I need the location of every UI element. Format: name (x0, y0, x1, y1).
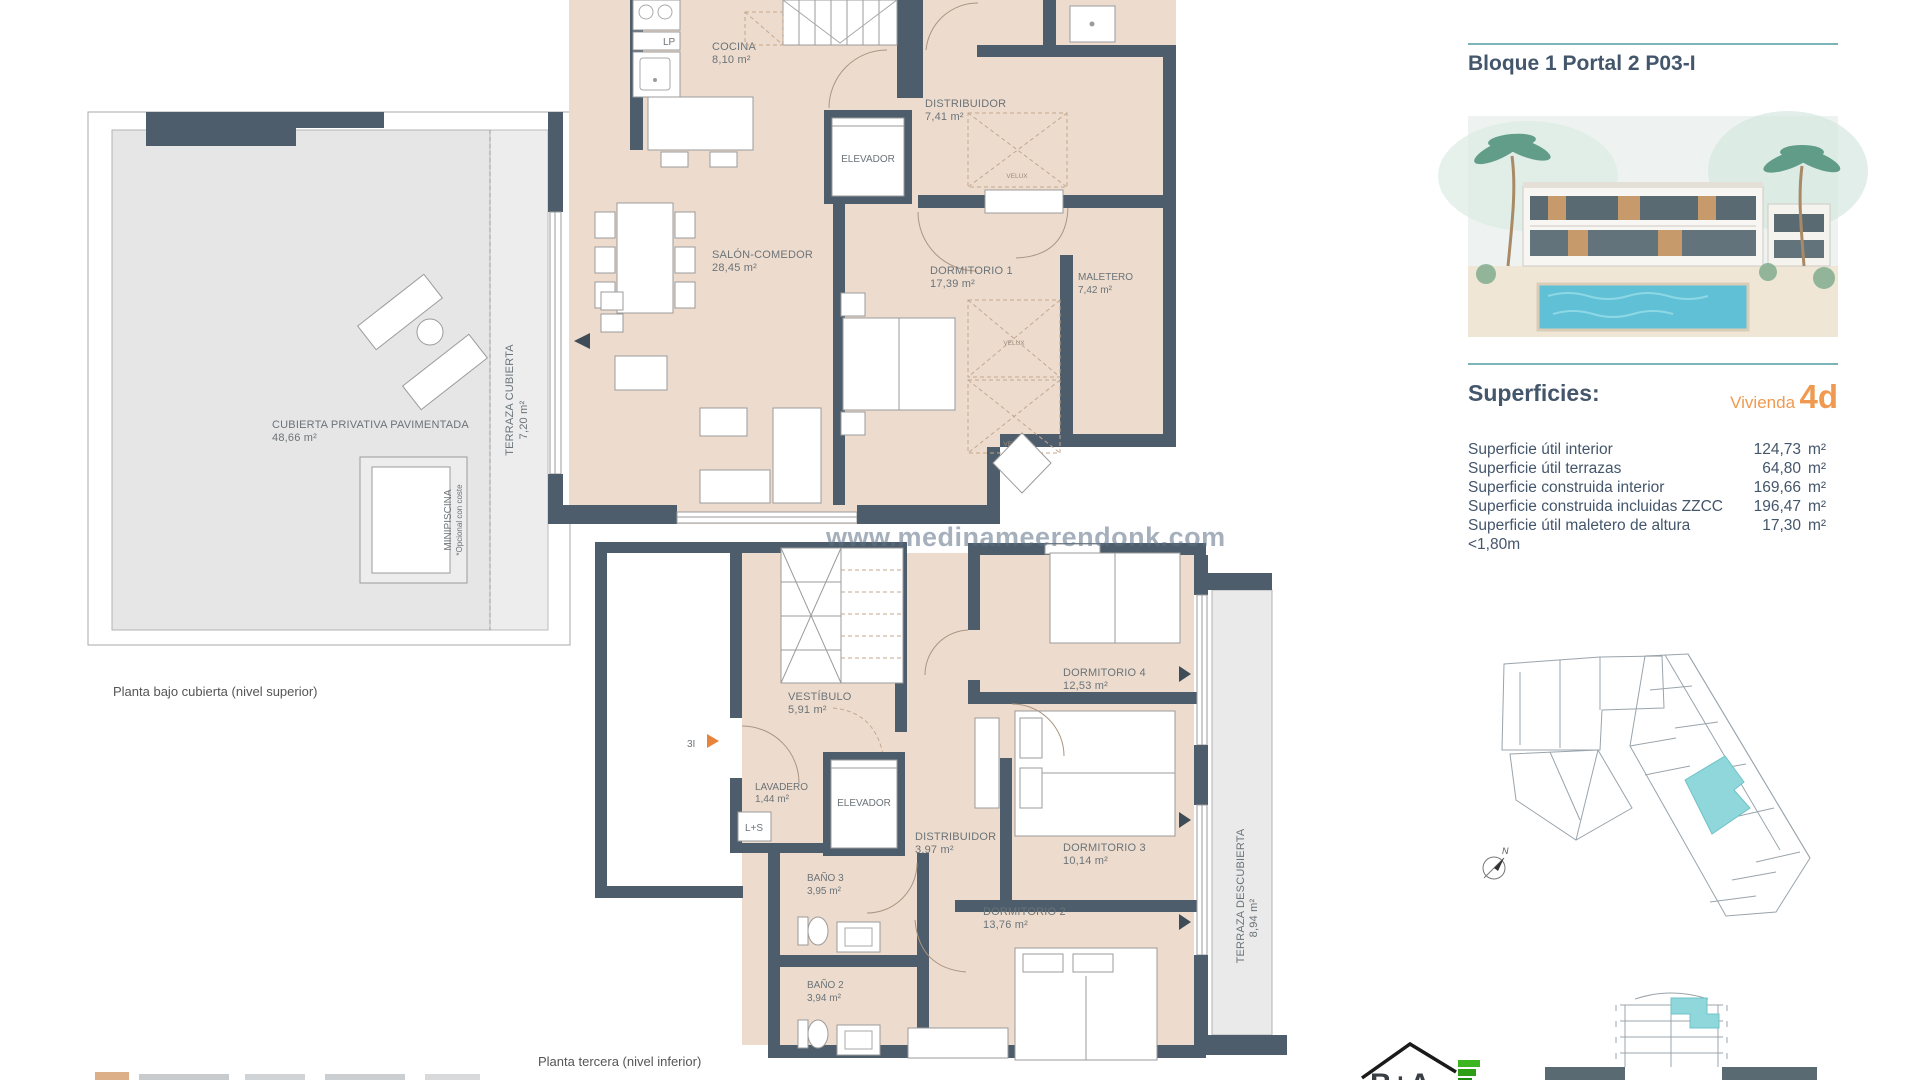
svg-text:B+A: B+A (1370, 1068, 1431, 1080)
side-table (417, 319, 443, 345)
page-title: Bloque 1 Portal 2 P03-I (1468, 52, 1696, 76)
room-label-bano2: BAÑO 2 (807, 978, 844, 991)
table-row: Superficie construida interior 169,66 m² (1468, 478, 1838, 497)
elevator-label: ELEVADOR (837, 798, 891, 809)
toilet (808, 917, 828, 945)
room-area-dormitorio3: 10,14 m² (1063, 855, 1108, 867)
elevator: ELEVADOR (823, 752, 905, 856)
building-section (1540, 985, 1840, 1080)
vivienda-label: Vivienda (1730, 393, 1795, 412)
svg-text:TERRAZA CUBIERTA: TERRAZA CUBIERTA (504, 344, 516, 456)
pool (1538, 284, 1748, 330)
divider (1468, 363, 1838, 365)
divider (1468, 43, 1838, 45)
room-area-cocina: 8,10 m² (712, 54, 751, 66)
room-label-lavadero: LAVADERO (755, 782, 808, 793)
minipiscina-label: MINIPISCINA (443, 489, 454, 550)
velux-label: VELUX (1006, 173, 1028, 180)
toilet (808, 1020, 828, 1048)
kitchen-island (648, 97, 753, 150)
elevator-label: ELEVADOR (841, 154, 895, 165)
velux-label: VELUX (1003, 340, 1025, 347)
upper-plan-caption: Planta bajo cubierta (nivel superior) (113, 684, 318, 699)
vivienda-tag: Vivienda 4d (1640, 382, 1838, 413)
svg-text:7,20 m²: 7,20 m² (518, 401, 530, 440)
open-terrace: TERRAZA DESCUBIERTA 8,94 m² (1202, 573, 1287, 1055)
highlighted-unit (1671, 998, 1719, 1028)
lower-plan-caption: Planta tercera (nivel inferior) (538, 1054, 701, 1069)
room-area-lavadero: 1,44 m² (755, 794, 790, 805)
room-label-cocina: COCINA (712, 41, 756, 53)
room-area-dormitorio1: 17,39 m² (930, 278, 975, 290)
room-label-vestibulo: VESTÍBULO (788, 690, 852, 703)
room-area-bano2: 3,94 m² (807, 993, 842, 1004)
room-label-dormitorio4: DORMITORIO 4 (1063, 667, 1146, 679)
superficies-table: Superficie útil interior 124,73 m² Super… (1468, 440, 1838, 554)
room-label-maletero: MALETERO (1078, 272, 1133, 283)
dining-table (617, 203, 673, 313)
room-area-terraza-descubierta: 8,94 m² (1248, 899, 1260, 938)
room-area-vestibulo: 5,91 m² (788, 704, 827, 716)
minipiscina-note: *Opcional con coste (455, 484, 464, 556)
brochure-page: CUBIERTA PRIVATIVA PAVIMENTADA 48,66 m² … (0, 0, 1920, 1080)
minipiscina: MINIPISCINA *Opcional con coste (360, 457, 467, 583)
room-area-distribuidor: 7,41 m² (925, 111, 964, 123)
wardrobe (975, 718, 999, 808)
vivienda-code: 4d (1799, 378, 1838, 415)
room-area-dormitorio2: 13,76 m² (983, 919, 1028, 931)
table-row: Superficie útil interior 124,73 m² (1468, 440, 1838, 459)
elevator: ELEVADOR (824, 110, 912, 204)
lp-label: LP (663, 37, 676, 48)
room-area-maletero: 7,42 m² (1078, 285, 1113, 296)
sofa (773, 408, 821, 503)
lower-floor-plan: TERRAZA DESCUBIERTA 8,94 m² (595, 528, 1355, 1080)
room-label-distribuidor: DISTRIBUIDOR (915, 831, 996, 843)
room-area-salon: 28,45 m² (712, 262, 757, 274)
unit-marker: 3I (687, 739, 695, 750)
room-area-bano3: 3,95 m² (807, 886, 842, 897)
table-row: Superficie útil maletero de altura <1,80… (1468, 516, 1838, 554)
room-label-terraza-descubierta: TERRAZA DESCUBIERTA (1235, 828, 1247, 963)
room-label-bano3: BAÑO 3 (807, 871, 844, 884)
site-key-plan: N (1480, 650, 1850, 940)
room-area-dormitorio4: 12,53 m² (1063, 680, 1108, 692)
clipped-footer-logo (95, 1072, 735, 1080)
room-label-dormitorio1: DORMITORIO 1 (930, 265, 1013, 277)
room-label-dormitorio2: DORMITORIO 2 (983, 906, 1066, 918)
table-row: Superficie construida incluidas ZZCC 196… (1468, 497, 1838, 516)
building-render (1468, 116, 1838, 337)
room-label-salon: SALÓN-COMEDOR (712, 248, 813, 261)
roof-terrace: CUBIERTA PRIVATIVA PAVIMENTADA 48,66 m² … (88, 112, 570, 645)
coffee-table (615, 356, 667, 390)
north-label: N (1502, 846, 1509, 856)
room-label-dormitorio3: DORMITORIO 3 (1063, 842, 1146, 854)
window-seat (908, 1028, 1008, 1058)
sofa (700, 470, 770, 503)
energy-label-icon (1458, 1060, 1480, 1080)
highlighted-unit (1685, 756, 1750, 834)
watermark: www.medinameerendonk.com (826, 522, 1226, 553)
room-label-cubierta: CUBIERTA PRIVATIVA PAVIMENTADA (272, 419, 469, 431)
compass-icon: N (1483, 846, 1509, 879)
table-row: Superficie útil terrazas 64,80 m² (1468, 459, 1838, 478)
architect-logo: B+A (1358, 1038, 1488, 1080)
room-area-cubierta: 48,66 m² (272, 432, 317, 444)
room-label-distribuidor: DISTRIBUIDOR (925, 98, 1006, 110)
ls-label: L+S (745, 823, 763, 834)
room-area-distribuidor: 3,97 m² (915, 844, 954, 856)
superficies-heading: Superficies: (1468, 380, 1600, 407)
